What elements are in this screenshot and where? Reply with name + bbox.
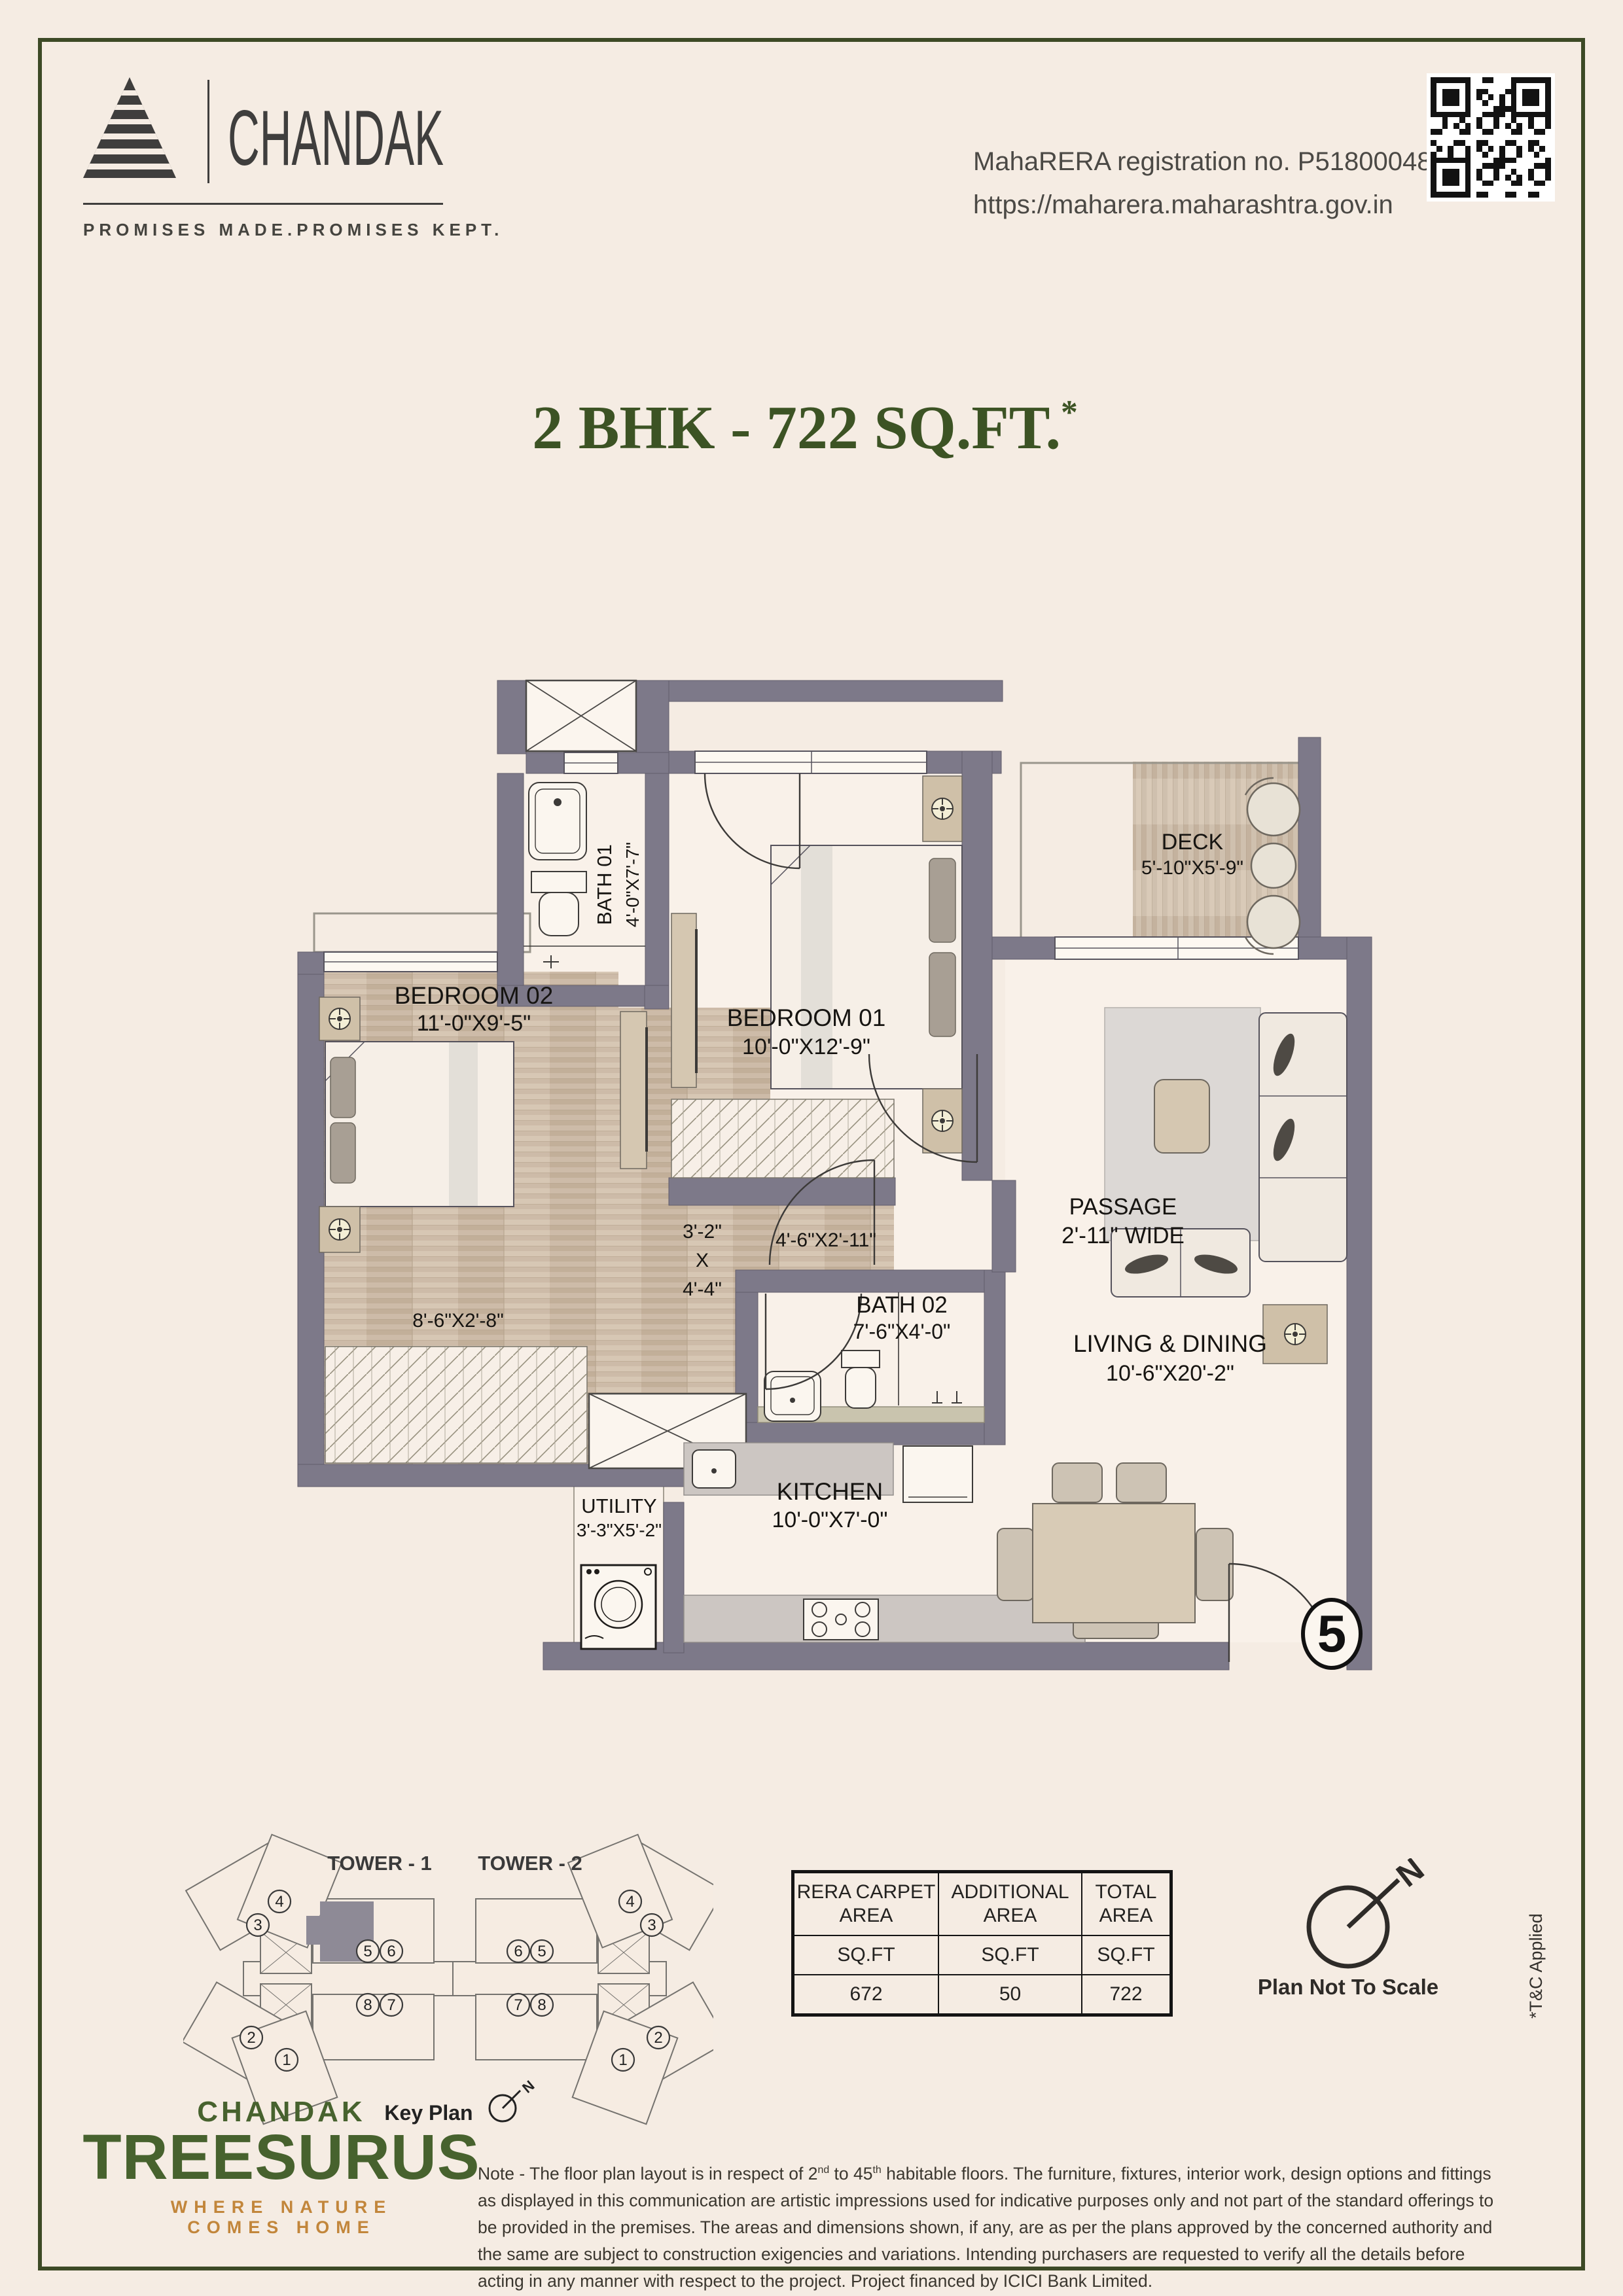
svg-text:LIVING & DINING: LIVING & DINING [1073, 1330, 1267, 1357]
svg-text:10'-6"X20'-2": 10'-6"X20'-2" [1106, 1361, 1234, 1386]
svg-text:2: 2 [247, 2029, 255, 2047]
svg-text:BEDROOM 02: BEDROOM 02 [395, 982, 554, 1009]
area-value-total: 722 [1082, 1975, 1169, 2013]
svg-text:1: 1 [282, 2051, 291, 2069]
svg-text:7'-6"X4'-0": 7'-6"X4'-0" [853, 1320, 951, 1343]
page-title: 2 BHK - 722 SQ.FT.* [0, 393, 1610, 463]
area-unit-1: SQ.FT [794, 1936, 939, 1975]
tnc-applied: *T&C Applied [1526, 1875, 1546, 2019]
title-text: 2 BHK - 722 SQ.FT. [532, 394, 1061, 462]
tower2-footprint [453, 1835, 713, 2125]
svg-text:7: 7 [514, 1996, 522, 2014]
svg-text:5: 5 [537, 1943, 546, 1960]
footer-brand-treesourus: TREES URUS [98, 2125, 465, 2188]
area-table: RERA CARPET AREA ADDITIONAL AREA TOTAL A… [791, 1870, 1173, 2017]
svg-text:10'-0"X7'-0": 10'-0"X7'-0" [772, 1508, 888, 1532]
qr-code [1427, 73, 1555, 202]
note-part2: to 45 [829, 2164, 872, 2183]
rera-registration: MahaRERA registration no. P51800048658 h… [973, 140, 1475, 226]
svg-text:PASSAGE: PASSAGE [1069, 1194, 1177, 1220]
svg-text:BATH 02: BATH 02 [856, 1292, 947, 1318]
compass-north-letter: N [1389, 1858, 1431, 1894]
svg-text:5: 5 [1317, 1604, 1347, 1663]
svg-text:4'-6"X2'-11": 4'-6"X2'-11" [776, 1229, 876, 1251]
svg-text:6: 6 [387, 1943, 395, 1960]
svg-text:10'-0"X12'-9": 10'-0"X12'-9" [742, 1034, 870, 1059]
area-value-additional: 50 [939, 1975, 1082, 2013]
note-sup1: nd [817, 2164, 829, 2176]
svg-text:X: X [696, 1250, 709, 1271]
svg-text:DECK: DECK [1162, 830, 1224, 855]
key-plan: TOWER - 1 TOWER - 2 34 56 87 21 65 78 43… [183, 1826, 713, 2140]
svg-text:UTILITY: UTILITY [581, 1494, 656, 1517]
svg-text:8: 8 [537, 1996, 546, 2014]
svg-text:2: 2 [654, 2029, 662, 2047]
brochure-page: { "header": { "brand": { "name": "CHANDA… [0, 0, 1623, 2296]
svg-text:BEDROOM 01: BEDROOM 01 [727, 1004, 886, 1031]
svg-text:11'-0"X9'-5": 11'-0"X9'-5" [417, 1011, 531, 1036]
pyramid-logo-icon [79, 72, 183, 183]
brand-tagline: PROMISES MADE.PROMISES KEPT. [83, 220, 503, 240]
area-header-rera: RERA CARPET AREA [794, 1873, 939, 1936]
footer-tagline: WHERE NATURE COMES HOME [124, 2197, 438, 2238]
svg-text:4'-4": 4'-4" [683, 1279, 722, 1300]
svg-text:4: 4 [275, 1893, 283, 1911]
svg-text:7: 7 [387, 1996, 395, 2014]
note-part1: Note - The floor plan layout is in respe… [478, 2164, 817, 2183]
area-unit-2: SQ.FT [939, 1936, 1082, 1975]
svg-text:5'-10"X5'-9": 5'-10"X5'-9" [1141, 857, 1243, 879]
title-asterisk: * [1061, 394, 1078, 431]
svg-text:6: 6 [514, 1943, 522, 1960]
utility-fixtures [581, 1565, 656, 1649]
deck-furniture [1245, 778, 1300, 954]
svg-text:1: 1 [618, 2051, 627, 2069]
svg-text:3: 3 [647, 1916, 656, 1934]
area-value-rera: 672 [794, 1975, 939, 2013]
unit-number-badge: 5 [1303, 1600, 1361, 1668]
brand-rule [83, 203, 443, 205]
plan-not-to-scale: Plan Not To Scale [1230, 1975, 1466, 2000]
area-header-total: TOTAL AREA [1082, 1873, 1169, 1936]
brand-name: CHANDAK [228, 94, 444, 182]
svg-text:4: 4 [626, 1893, 634, 1911]
svg-text:4'-0"X7'-7": 4'-0"X7'-7" [622, 842, 643, 927]
footer-brand-right: URUS [298, 2126, 480, 2188]
footer-brand-left: TREES [82, 2126, 297, 2188]
logo-divider [207, 80, 209, 183]
svg-text:2'-11" WIDE: 2'-11" WIDE [1061, 1223, 1185, 1248]
svg-text:8'-6"X2'-8": 8'-6"X2'-8" [412, 1310, 503, 1332]
tower1-label: TOWER - 1 [327, 1852, 432, 1875]
note-sup2: th [872, 2164, 881, 2176]
svg-text:5: 5 [363, 1943, 372, 1960]
svg-text:BATH 01: BATH 01 [593, 844, 616, 925]
key-plan-north: N [519, 2077, 537, 2096]
rera-url: https://maharera.maharashtra.gov.in [973, 183, 1475, 226]
disclaimer-note: Note - The floor plan layout is in respe… [478, 2157, 1502, 2295]
key-plan-compass-icon [490, 2091, 520, 2121]
area-header-additional: ADDITIONAL AREA [939, 1873, 1082, 1936]
svg-text:3'-3"X5'-2": 3'-3"X5'-2" [577, 1520, 662, 1540]
svg-text:3'-2": 3'-2" [683, 1221, 722, 1243]
tower2-label: TOWER - 2 [478, 1852, 582, 1875]
tower1-footprint [183, 1835, 457, 2125]
svg-text:KITCHEN: KITCHEN [777, 1478, 883, 1505]
floor-plan: 5 BEDROOM 01 10'-0"X12'-9" BEDROOM 02 11… [288, 661, 1374, 1688]
svg-text:8: 8 [363, 1996, 372, 2014]
area-unit-3: SQ.FT [1082, 1936, 1169, 1975]
svg-text:3: 3 [253, 1916, 262, 1934]
chandak-logo: CHANDAK [79, 69, 471, 200]
rera-number: MahaRERA registration no. P51800048658 [973, 140, 1475, 183]
